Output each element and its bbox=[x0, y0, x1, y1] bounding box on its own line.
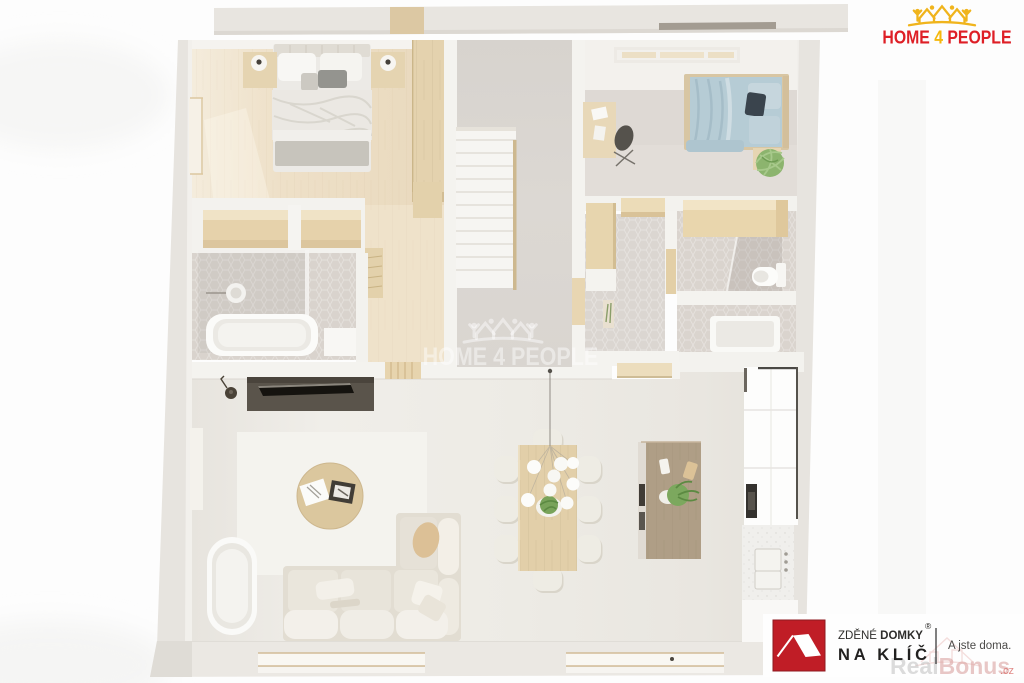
svg-text:HOME 4 PEOPLE: HOME 4 PEOPLE bbox=[882, 26, 1011, 48]
svg-text:ZDĚNÉ DOMKY: ZDĚNÉ DOMKY bbox=[838, 629, 923, 642]
svg-text:NA KLÍČ: NA KLÍČ bbox=[838, 645, 931, 664]
svg-text:.cz: .cz bbox=[1000, 665, 1014, 677]
svg-text:A jste doma.: A jste doma. bbox=[948, 640, 1011, 652]
svg-text:®: ® bbox=[925, 621, 932, 631]
svg-text:HOME 4 PEOPLE: HOME 4 PEOPLE bbox=[423, 342, 599, 370]
